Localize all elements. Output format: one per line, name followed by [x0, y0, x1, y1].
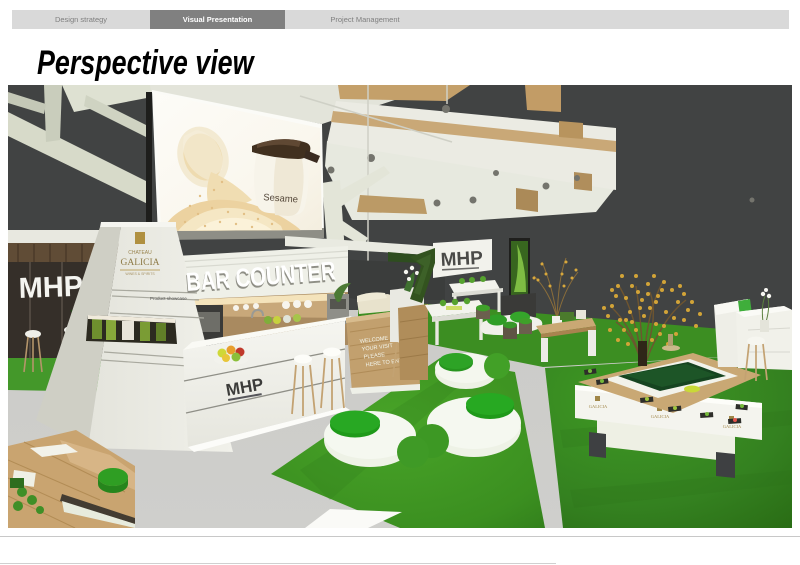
svg-text:GALICIA: GALICIA	[120, 258, 159, 268]
svg-text:GALICIA: GALICIA	[723, 424, 742, 429]
svg-text:Product showcase: Product showcase	[150, 296, 187, 301]
svg-text:МНР: МНР	[18, 271, 84, 305]
svg-text:GALICIA: GALICIA	[651, 414, 670, 419]
svg-text:CHATEAU: CHATEAU	[128, 250, 152, 256]
svg-text:WINES & SPIRITS: WINES & SPIRITS	[125, 272, 155, 276]
svg-text:GALICIA: GALICIA	[589, 404, 608, 409]
